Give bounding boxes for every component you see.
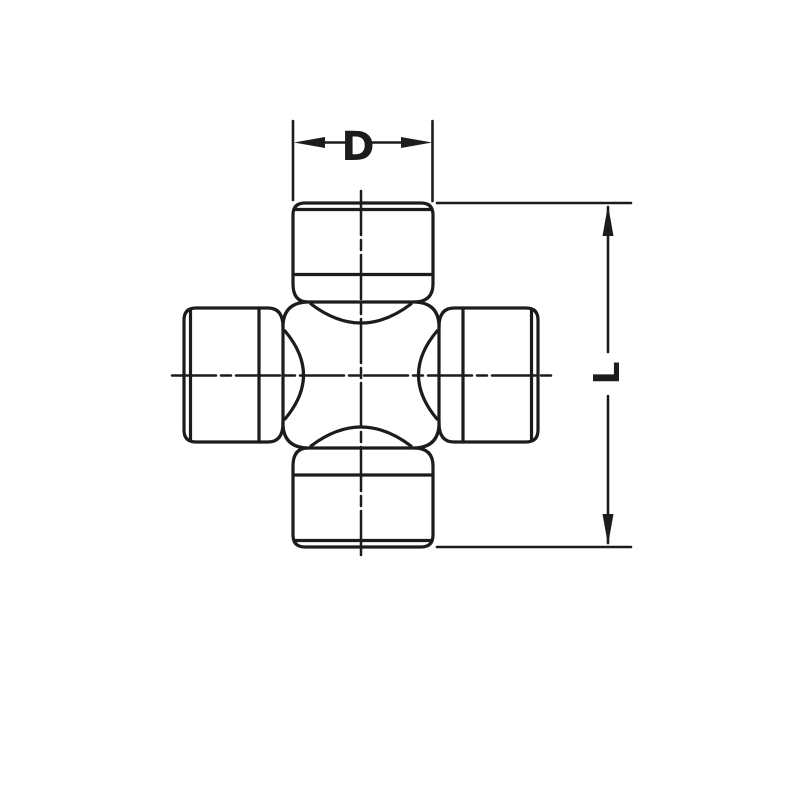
- u-joint-technical-drawing: D L: [0, 0, 800, 800]
- arrow-down-icon: [603, 514, 614, 545]
- dimension-labels: D L: [341, 124, 628, 384]
- diagram-canvas: D L: [0, 0, 800, 800]
- bottom-cap-outline: [293, 448, 433, 547]
- dimension-arrowheads: [294, 137, 614, 545]
- arrow-left-icon: [294, 137, 325, 148]
- fillet-bottom-left: [283, 421, 307, 448]
- fillet-bottom-right: [415, 421, 439, 448]
- bottom-bearing-cap: [293, 448, 433, 547]
- top-cap-outline: [293, 203, 433, 302]
- top-bearing-cap: [293, 203, 433, 302]
- centerlines: [172, 191, 553, 558]
- dimension-l-label: L: [587, 362, 628, 385]
- fillet-top-left: [283, 302, 307, 329]
- arrow-right-icon: [401, 137, 432, 148]
- arrow-up-icon: [603, 205, 614, 236]
- dimension-d-label: D: [341, 124, 374, 170]
- drawing-lines: [172, 121, 631, 558]
- fillet-top-right: [415, 302, 439, 329]
